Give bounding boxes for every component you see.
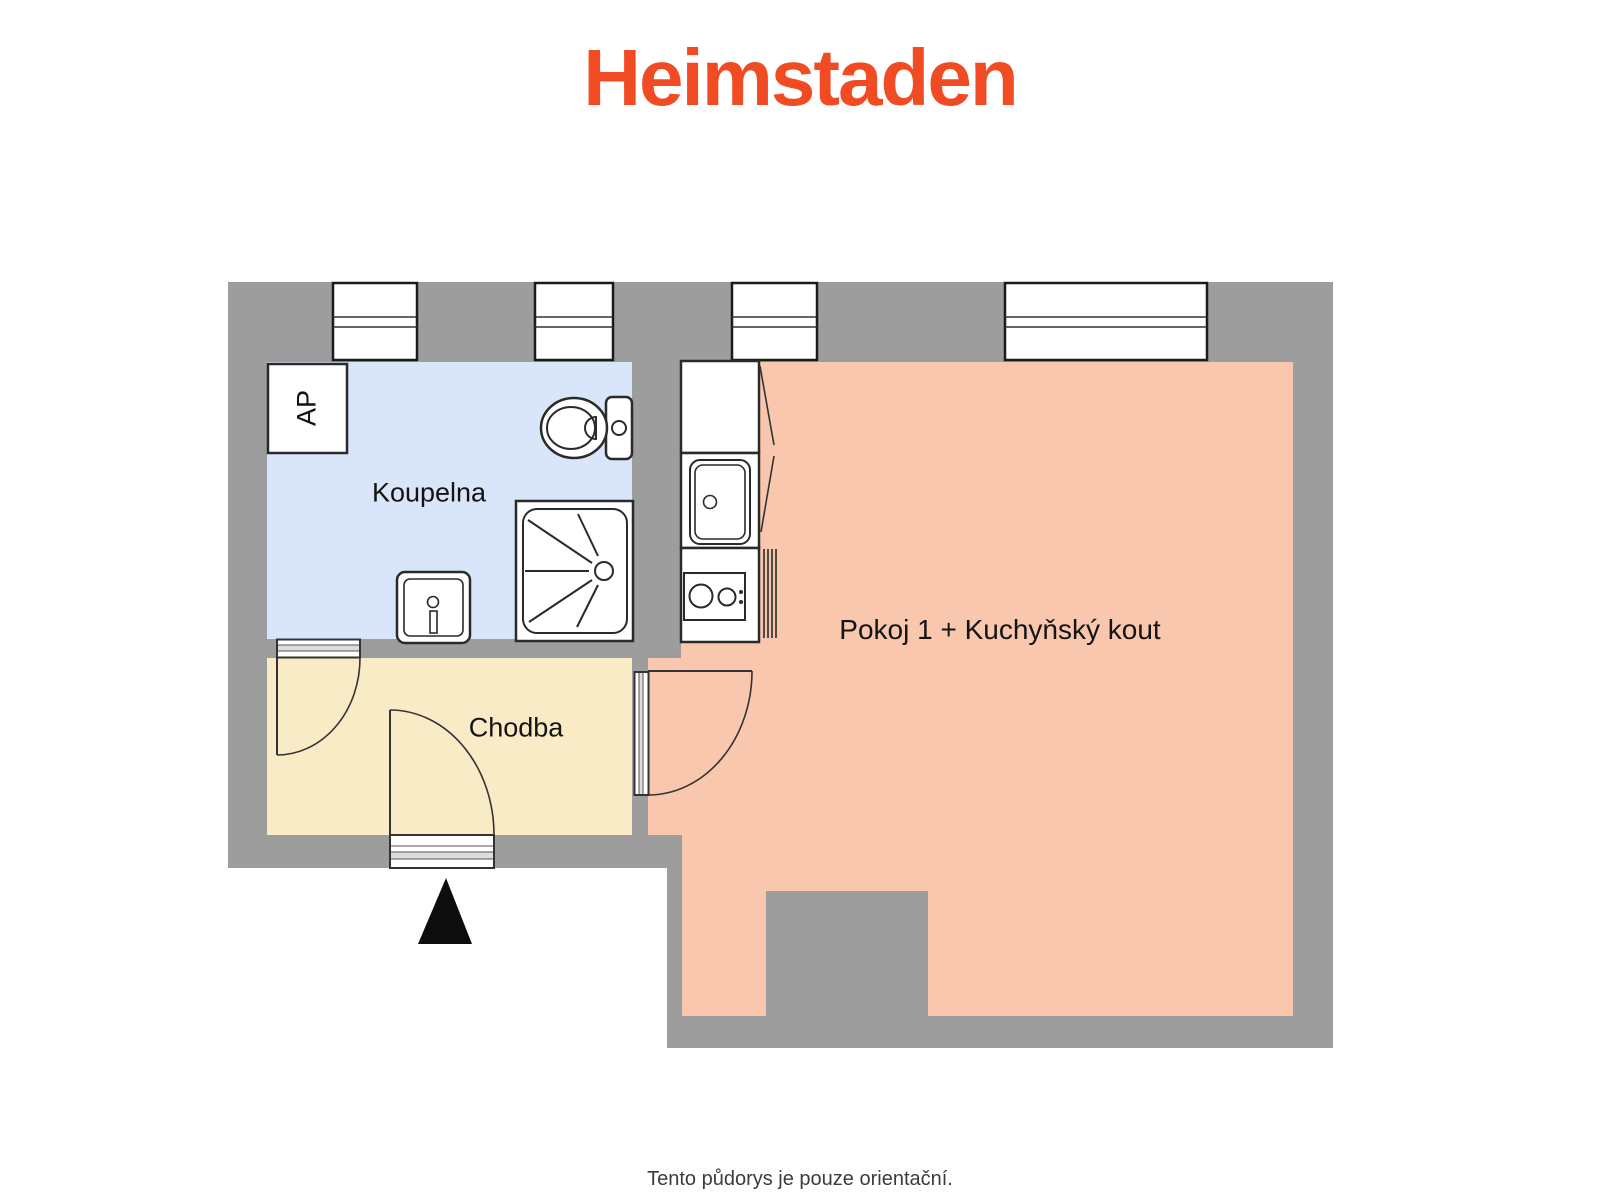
entrance-arrow-icon	[418, 878, 472, 944]
window-icon	[535, 283, 613, 360]
ap-box	[268, 364, 347, 453]
chimney-block	[766, 891, 928, 1016]
shower-icon	[516, 501, 633, 641]
kitchen-cabinet-icon	[681, 361, 774, 453]
stove-icon	[681, 548, 759, 642]
window-icon	[1005, 283, 1207, 360]
kitchen-sink-icon	[681, 453, 774, 548]
floor-plan	[0, 0, 1600, 1200]
window-icon	[732, 283, 817, 360]
window-icon	[333, 283, 417, 360]
hallway-floor	[267, 658, 632, 835]
toilet-icon	[541, 397, 632, 459]
partition-bathroom-room1	[632, 362, 681, 658]
disclaimer-caption: Tento půdorys je pouze orientační.	[0, 1168, 1600, 1191]
washbasin-icon	[397, 572, 470, 643]
page: Heimstaden	[0, 0, 1600, 1200]
